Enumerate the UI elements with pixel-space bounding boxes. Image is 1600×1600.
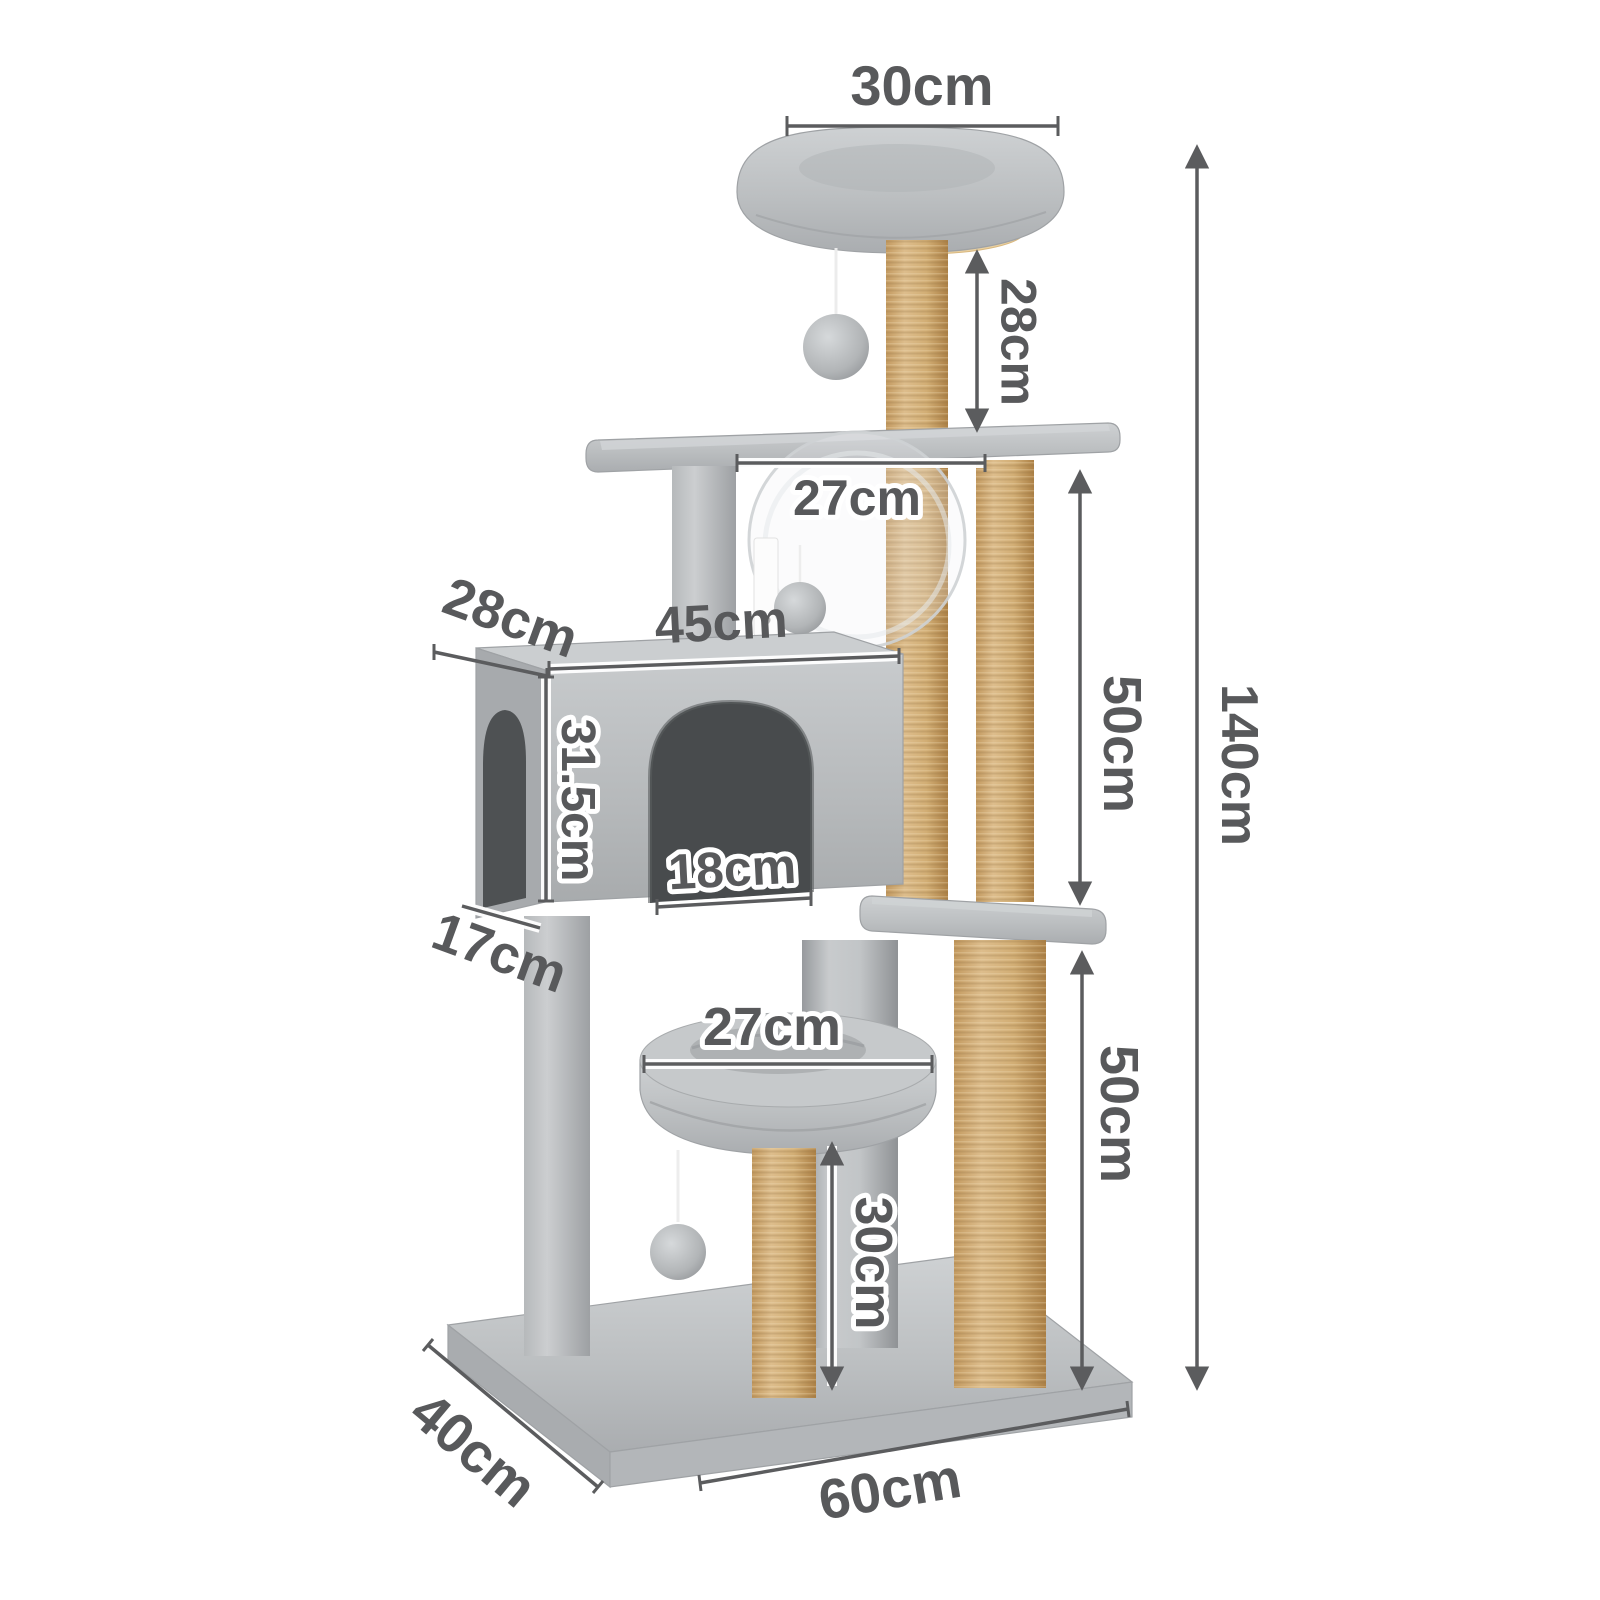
dim-label-condo-width: 45cm (653, 591, 789, 656)
dim-label-lower-bed-width: 27cm (703, 997, 841, 1057)
dim-door-width: 18cm (657, 838, 811, 915)
top-scratching-post (886, 240, 948, 440)
dim-label-condo-height: 31.5cm (551, 719, 604, 882)
lower-scratching-post (752, 1148, 816, 1398)
dim-upper-post-height: 50cm (1080, 474, 1152, 901)
dim-top-bed-width: 30cm (787, 54, 1058, 136)
dim-label-door-width: 18cm (667, 838, 798, 901)
dim-label-lower-post-height: 50cm (1089, 1045, 1149, 1183)
condo-side-window (483, 710, 526, 908)
right-ledge-platform (860, 896, 1106, 944)
dim-total-height: 140cm (1197, 149, 1268, 1386)
dim-label-middle-platform-width: 27cm (793, 470, 921, 526)
dim-label-upper-post-height: 50cm (1092, 675, 1152, 813)
hanging-ball-lower (650, 1224, 706, 1280)
dim-label-top-bed-width: 30cm (850, 54, 993, 117)
scratching-post-upper-right (976, 460, 1034, 902)
hanging-ball-top (803, 314, 869, 380)
dim-top-post-height: 28cm (977, 254, 1047, 428)
product-dimension-diagram: 30cm 28cm 140cm 27cm 28cm (0, 0, 1600, 1600)
dim-lower-post-height: 50cm (1082, 955, 1149, 1386)
top-bed-recess (799, 144, 995, 192)
dim-label-total-height: 140cm (1210, 684, 1268, 846)
dim-label-top-post-height: 28cm (991, 278, 1047, 406)
cat-tree-diagram-canvas: 30cm 28cm 140cm 27cm 28cm (0, 0, 1600, 1600)
dim-label-bottom-post-height: 30cm (844, 1197, 902, 1330)
scratching-post-lower-right (954, 940, 1046, 1388)
